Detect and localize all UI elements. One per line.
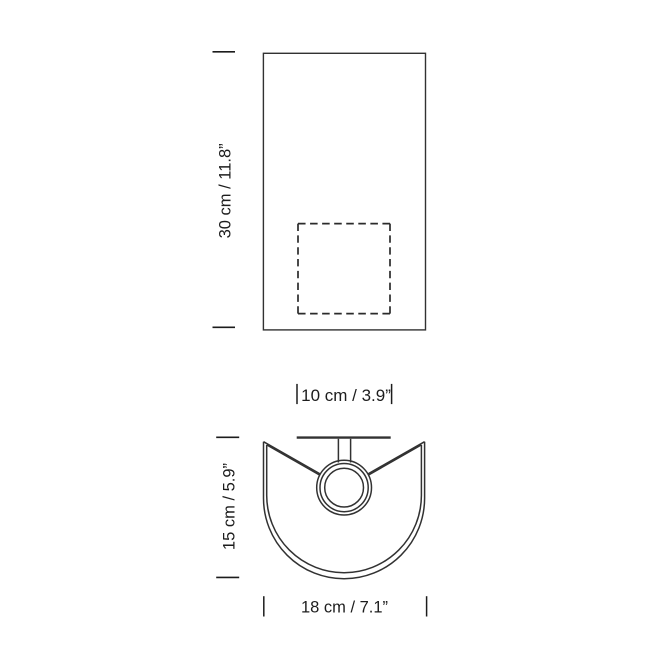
svg-text:18 cm / 7.1”: 18 cm / 7.1” — [301, 598, 388, 616]
svg-text:10 cm / 3.9”: 10 cm / 3.9” — [301, 386, 391, 405]
svg-text:15 cm / 5.9”: 15 cm / 5.9” — [220, 463, 238, 550]
svg-text:30 cm / 11.8”: 30 cm / 11.8” — [217, 143, 235, 238]
